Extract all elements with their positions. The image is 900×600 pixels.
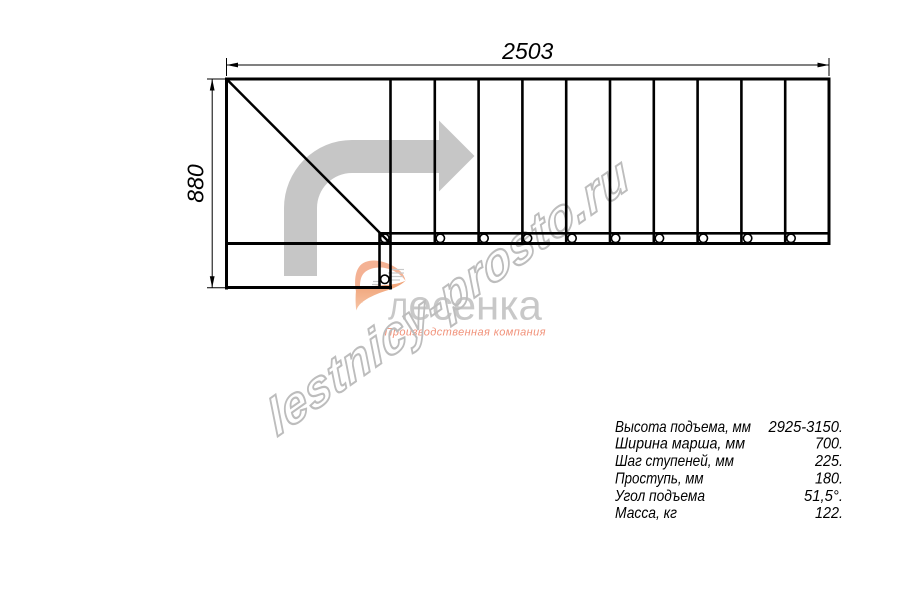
svg-text:Высота подъема, мм: Высота подъема, мм <box>615 419 751 436</box>
svg-text:122.: 122. <box>815 505 843 522</box>
svg-text:880: 880 <box>183 164 209 203</box>
svg-text:225.: 225. <box>814 453 843 470</box>
svg-text:Ширина марша, мм: Ширина марша, мм <box>615 436 745 453</box>
svg-text:Проступь, мм: Проступь, мм <box>615 471 704 488</box>
svg-text:700.: 700. <box>815 436 843 453</box>
svg-text:2503: 2503 <box>501 38 553 64</box>
svg-text:Шаг ступеней, мм: Шаг ступеней, мм <box>615 453 734 470</box>
svg-text:51,5°.: 51,5°. <box>804 488 843 505</box>
svg-text:180.: 180. <box>815 471 843 488</box>
svg-text:Масса, кг: Масса, кг <box>615 505 677 522</box>
svg-text:2925-3150.: 2925-3150. <box>768 419 843 436</box>
svg-text:Угол подъема: Угол подъема <box>614 488 705 505</box>
